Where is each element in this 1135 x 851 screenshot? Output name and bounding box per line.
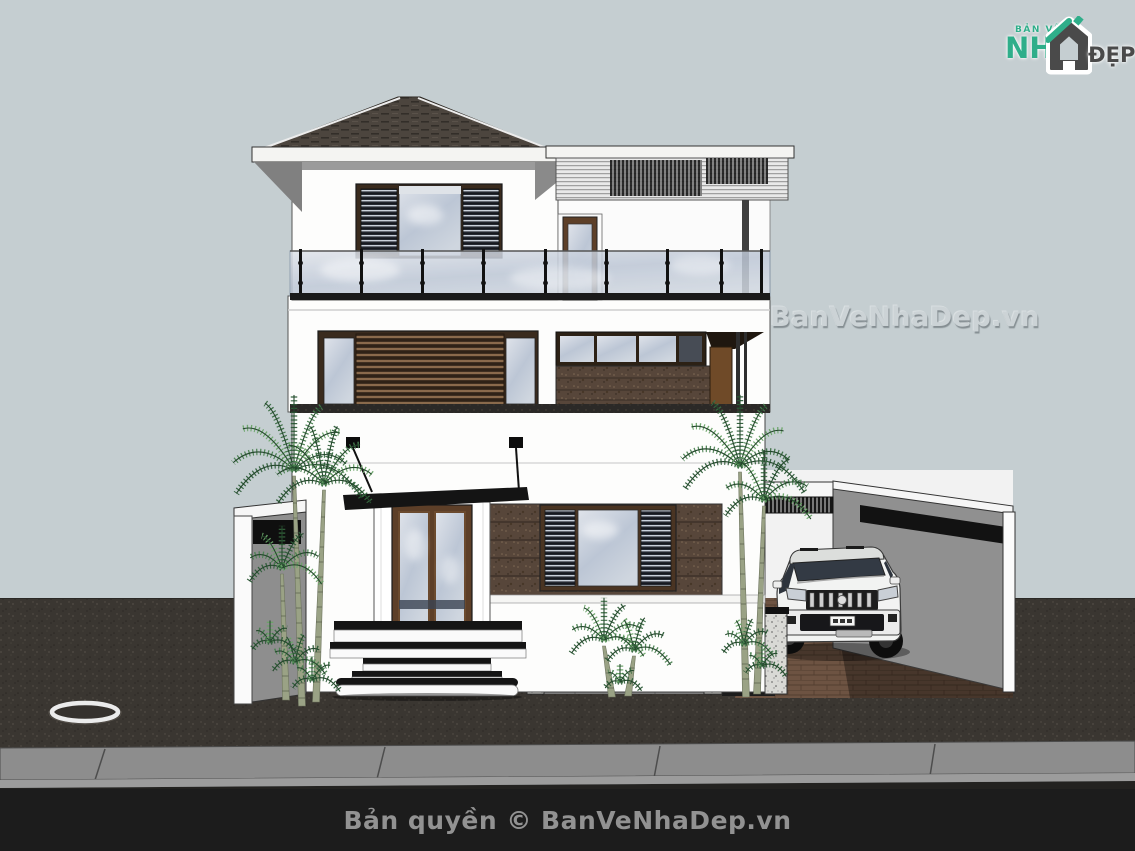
car-mirror-left xyxy=(773,581,782,588)
villa-render xyxy=(0,0,1135,851)
site-logo: BẢN VẼ NH ĐẸP xyxy=(1002,16,1130,80)
second-floor-louver-window xyxy=(318,331,538,411)
copyright-bar: Bản quyền © BanVeNhaDep.vn xyxy=(0,789,1135,851)
copyright-text: Bản quyền © BanVeNhaDep.vn xyxy=(343,806,791,835)
wood-column xyxy=(710,347,732,407)
car-mirror-right xyxy=(890,577,900,584)
manhole-ring xyxy=(49,702,121,724)
car-headlight-left xyxy=(786,588,806,601)
third-floor-window xyxy=(356,184,502,258)
entry-door xyxy=(374,502,490,632)
render-canvas: { "watermark": { "text": "BanVeNhaDep.vn… xyxy=(0,0,1135,851)
canopy-mount-right xyxy=(509,437,523,448)
slab-edge xyxy=(290,404,770,413)
ground-floor-window xyxy=(540,505,676,591)
second-floor xyxy=(288,296,770,413)
carport-front-beam xyxy=(763,482,833,497)
clerestory-windows xyxy=(556,332,706,366)
balcony-railing xyxy=(290,249,770,300)
watermark: BanVeNhaDep.vn xyxy=(770,302,1040,333)
roof-fascia xyxy=(252,147,572,162)
ground-floor xyxy=(292,410,765,701)
house-icon xyxy=(1046,16,1092,76)
carport-end-cap xyxy=(1003,512,1015,692)
logo-name-suffix: ĐẸP xyxy=(1088,43,1135,67)
carport-front-louvers xyxy=(760,497,833,513)
